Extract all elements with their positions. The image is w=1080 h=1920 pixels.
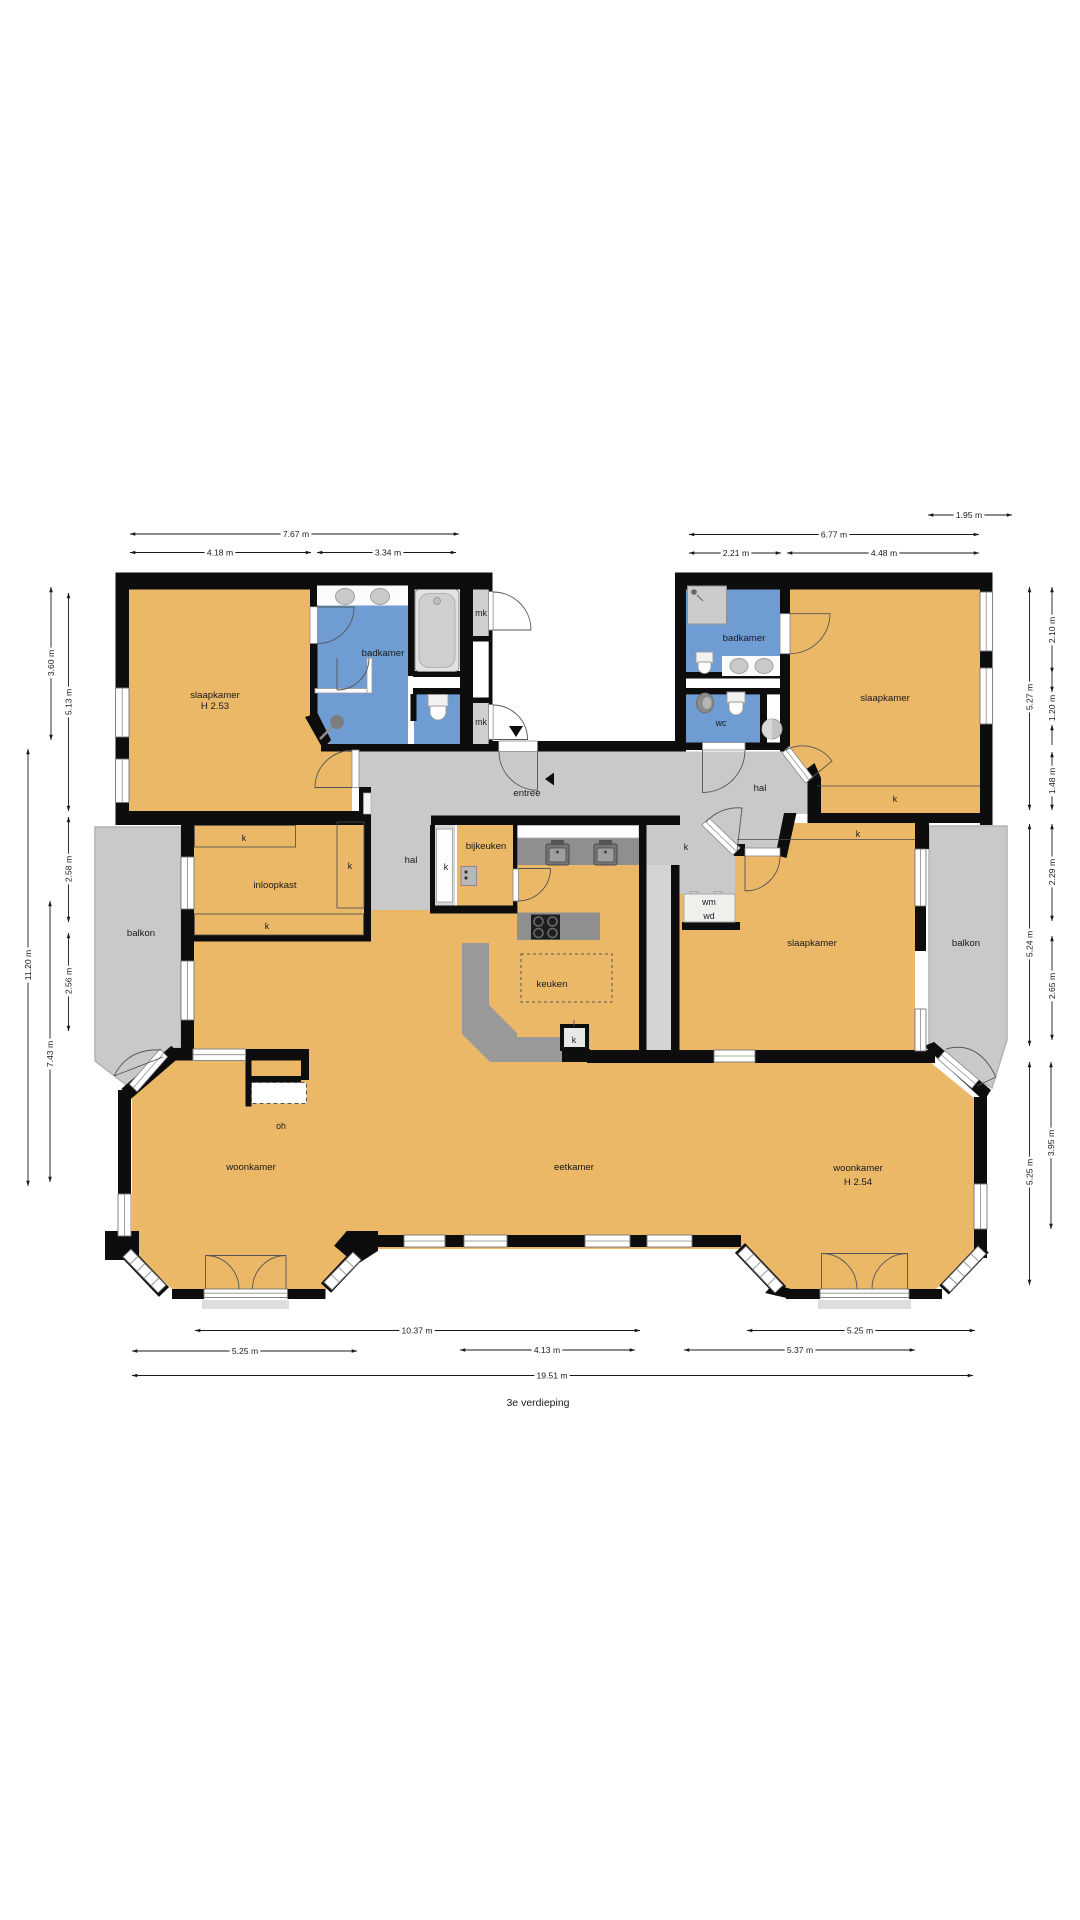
svg-text:mk: mk bbox=[475, 608, 487, 618]
svg-text:5.13 m: 5.13 m bbox=[64, 689, 74, 715]
svg-text:k: k bbox=[265, 921, 270, 931]
svg-text:H 2.54: H 2.54 bbox=[844, 1177, 873, 1188]
svg-text:2.65 m: 2.65 m bbox=[1047, 973, 1057, 999]
svg-text:hal: hal bbox=[405, 855, 418, 866]
svg-text:11.20 m: 11.20 m bbox=[23, 950, 33, 980]
svg-text:19.51 m: 19.51 m bbox=[536, 1371, 567, 1381]
svg-text:7.67 m: 7.67 m bbox=[283, 529, 309, 539]
svg-text:k: k bbox=[893, 794, 898, 804]
svg-text:5.24 m: 5.24 m bbox=[1025, 931, 1035, 957]
svg-text:2.10 m: 2.10 m bbox=[1047, 617, 1057, 643]
svg-text:k: k bbox=[856, 829, 861, 839]
svg-text:5.27 m: 5.27 m bbox=[1025, 684, 1035, 710]
svg-text:wd: wd bbox=[702, 911, 714, 921]
svg-text:keuken: keuken bbox=[537, 979, 568, 990]
svg-text:3e verdieping: 3e verdieping bbox=[506, 1397, 569, 1409]
svg-text:1.95 m: 1.95 m bbox=[956, 510, 982, 520]
svg-text:2.21 m: 2.21 m bbox=[723, 548, 749, 558]
svg-text:woonkamer: woonkamer bbox=[832, 1163, 883, 1174]
svg-text:slaapkamer: slaapkamer bbox=[190, 690, 240, 701]
svg-text:k: k bbox=[242, 833, 247, 843]
svg-text:wm: wm bbox=[701, 897, 716, 907]
svg-text:inloopkast: inloopkast bbox=[253, 880, 297, 891]
svg-text:k: k bbox=[572, 1035, 577, 1045]
svg-text:entree: entree bbox=[513, 788, 540, 799]
svg-text:10.37 m: 10.37 m bbox=[401, 1326, 432, 1336]
svg-text:bijkeuken: bijkeuken bbox=[466, 841, 507, 852]
svg-text:5.25 m: 5.25 m bbox=[232, 1346, 258, 1356]
svg-text:balkon: balkon bbox=[952, 938, 980, 949]
svg-text:2.29 m: 2.29 m bbox=[1047, 859, 1057, 885]
svg-text:eetkamer: eetkamer bbox=[554, 1162, 595, 1173]
svg-text:mk: mk bbox=[475, 717, 487, 727]
svg-text:1.48 m: 1.48 m bbox=[1047, 768, 1057, 794]
svg-text:7.43 m: 7.43 m bbox=[45, 1041, 55, 1067]
svg-text:k: k bbox=[348, 861, 353, 871]
svg-text:H 2.53: H 2.53 bbox=[201, 701, 229, 712]
svg-text:3.95 m: 3.95 m bbox=[1046, 1130, 1056, 1156]
svg-text:3.34 m: 3.34 m bbox=[375, 548, 401, 558]
svg-text:4.48 m: 4.48 m bbox=[871, 548, 897, 558]
svg-text:wc: wc bbox=[715, 718, 727, 728]
svg-text:6.77 m: 6.77 m bbox=[821, 530, 847, 540]
svg-text:5.25 m: 5.25 m bbox=[847, 1326, 873, 1336]
svg-text:woonkamer: woonkamer bbox=[225, 1162, 276, 1173]
svg-text:k: k bbox=[684, 842, 689, 852]
svg-text:3.60 m: 3.60 m bbox=[46, 650, 56, 676]
svg-text:badkamer: badkamer bbox=[723, 633, 766, 644]
svg-text:slaapkamer: slaapkamer bbox=[787, 938, 837, 949]
svg-text:5.25 m: 5.25 m bbox=[1025, 1159, 1035, 1185]
svg-text:badkamer: badkamer bbox=[362, 648, 405, 659]
svg-text:4.18 m: 4.18 m bbox=[207, 548, 233, 558]
svg-text:balkon: balkon bbox=[127, 928, 155, 939]
svg-text:2.58 m: 2.58 m bbox=[64, 856, 74, 882]
svg-text:k: k bbox=[444, 862, 449, 872]
svg-text:2.56 m: 2.56 m bbox=[64, 968, 74, 994]
svg-text:4.13 m: 4.13 m bbox=[534, 1345, 560, 1355]
svg-text:5.37 m: 5.37 m bbox=[787, 1345, 813, 1355]
svg-text:1.20 m: 1.20 m bbox=[1047, 695, 1057, 721]
svg-text:slaapkamer: slaapkamer bbox=[860, 693, 910, 704]
svg-text:oh: oh bbox=[276, 1121, 286, 1131]
svg-text:hal: hal bbox=[754, 783, 767, 794]
